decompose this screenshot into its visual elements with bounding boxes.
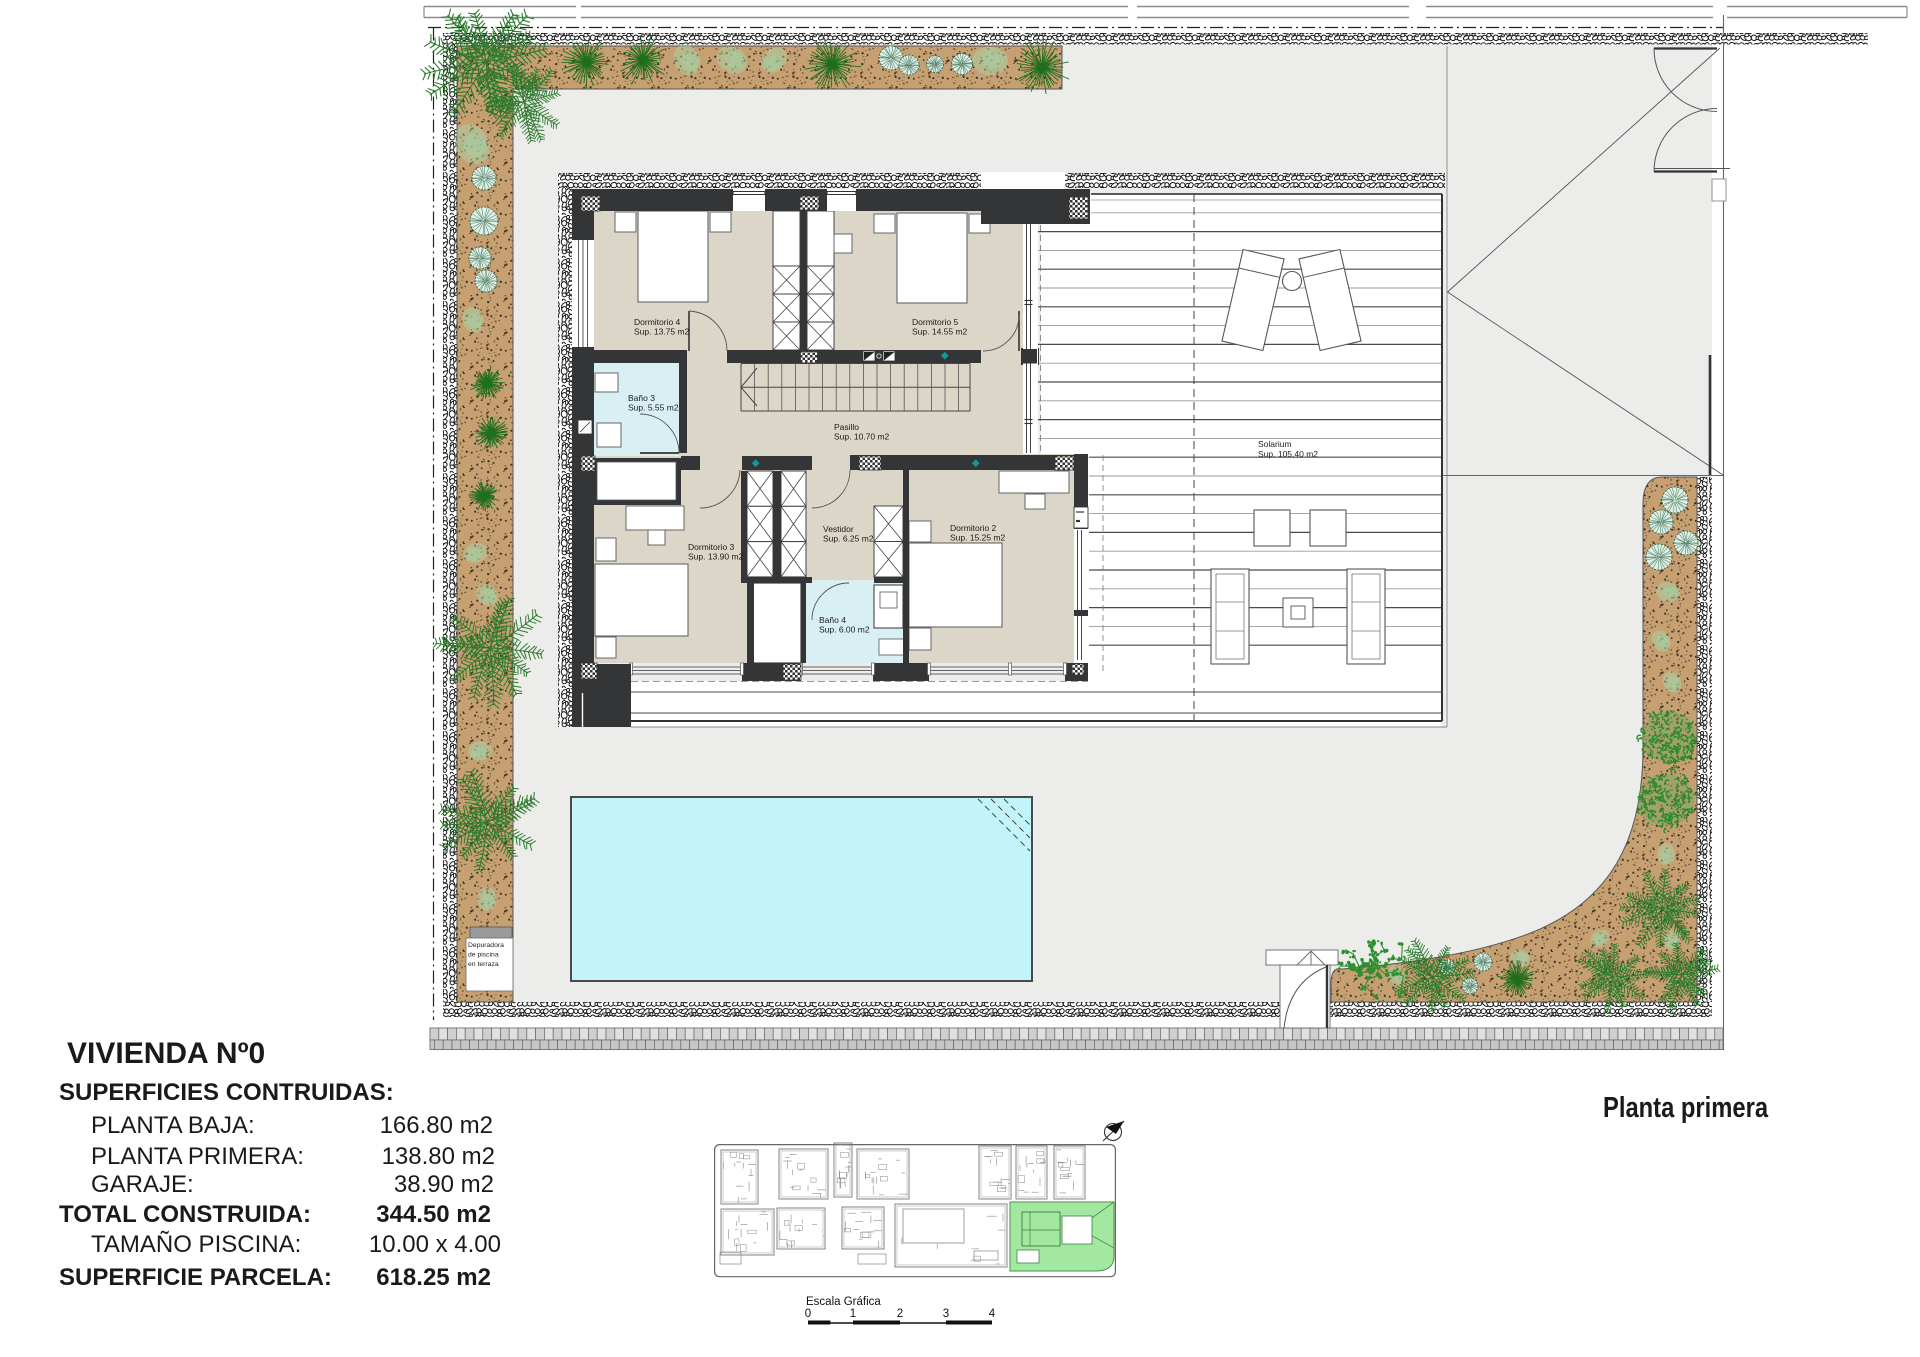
svg-text:TOTAL CONSTRUIDA:: TOTAL CONSTRUIDA:	[59, 1201, 311, 1228]
svg-text:VIVIENDA Nº0: VIVIENDA Nº0	[67, 1037, 265, 1070]
svg-text:Vestidor: Vestidor	[823, 524, 854, 534]
svg-text:en terraza: en terraza	[468, 961, 499, 968]
svg-text:1: 1	[850, 1308, 856, 1320]
svg-text:TAMAÑO PISCINA:: TAMAÑO PISCINA:	[91, 1231, 301, 1258]
svg-text:Dormitorio 4: Dormitorio 4	[634, 317, 681, 327]
svg-text:138.80 m2: 138.80 m2	[382, 1143, 495, 1170]
svg-text:Sup. 5.55 m2: Sup. 5.55 m2	[628, 403, 679, 413]
svg-text:10.00 x 4.00: 10.00 x 4.00	[369, 1231, 501, 1258]
svg-text:Sup. 15.25 m2: Sup. 15.25 m2	[950, 533, 1006, 543]
svg-text:Sup. 6.25 m2: Sup. 6.25 m2	[823, 534, 874, 544]
svg-text:GARAJE:: GARAJE:	[91, 1171, 194, 1198]
svg-text:PLANTA BAJA:: PLANTA BAJA:	[91, 1112, 255, 1139]
svg-text:4: 4	[989, 1308, 996, 1320]
svg-text:0: 0	[805, 1308, 811, 1320]
svg-text:Pasillo: Pasillo	[834, 422, 859, 432]
svg-text:Depuradora: Depuradora	[468, 942, 504, 949]
svg-text:3: 3	[943, 1308, 949, 1320]
svg-text:Sup. 13.90 m2: Sup. 13.90 m2	[688, 552, 744, 562]
svg-text:Baño 4: Baño 4	[819, 615, 846, 625]
svg-text:SUPERFICIES CONTRUIDAS:: SUPERFICIES CONTRUIDAS:	[59, 1079, 394, 1106]
svg-text:SUPERFICIE PARCELA:: SUPERFICIE PARCELA:	[59, 1264, 332, 1291]
svg-text:618.25 m2: 618.25 m2	[376, 1264, 491, 1291]
svg-text:Sup. 14.55 m2: Sup. 14.55 m2	[912, 327, 968, 337]
svg-text:Baño 3: Baño 3	[628, 393, 655, 403]
svg-text:Dormitorio 3: Dormitorio 3	[688, 542, 735, 552]
svg-text:Dormitorio 5: Dormitorio 5	[912, 317, 959, 327]
svg-text:Sup. 10.70 m2: Sup. 10.70 m2	[834, 432, 890, 442]
svg-text:38.90 m2: 38.90 m2	[394, 1171, 494, 1198]
svg-text:Sup. 6.00 m2: Sup. 6.00 m2	[819, 625, 870, 635]
svg-text:Sup. 105.40 m2: Sup. 105.40 m2	[1258, 449, 1318, 459]
svg-text:344.50 m2: 344.50 m2	[376, 1201, 491, 1228]
svg-text:166.80 m2: 166.80 m2	[380, 1112, 493, 1139]
svg-text:Dormitorio 2: Dormitorio 2	[950, 523, 997, 533]
svg-text:PLANTA PRIMERA:: PLANTA PRIMERA:	[91, 1143, 304, 1170]
svg-text:Escala Gráfica: Escala Gráfica	[806, 1296, 881, 1308]
svg-text:Planta primera: Planta primera	[1603, 1091, 1768, 1124]
svg-text:Solarium: Solarium	[1258, 439, 1292, 449]
svg-text:2: 2	[897, 1308, 903, 1320]
svg-text:Sup. 13.75 m2: Sup. 13.75 m2	[634, 327, 690, 337]
svg-text:de piscina: de piscina	[468, 952, 499, 959]
